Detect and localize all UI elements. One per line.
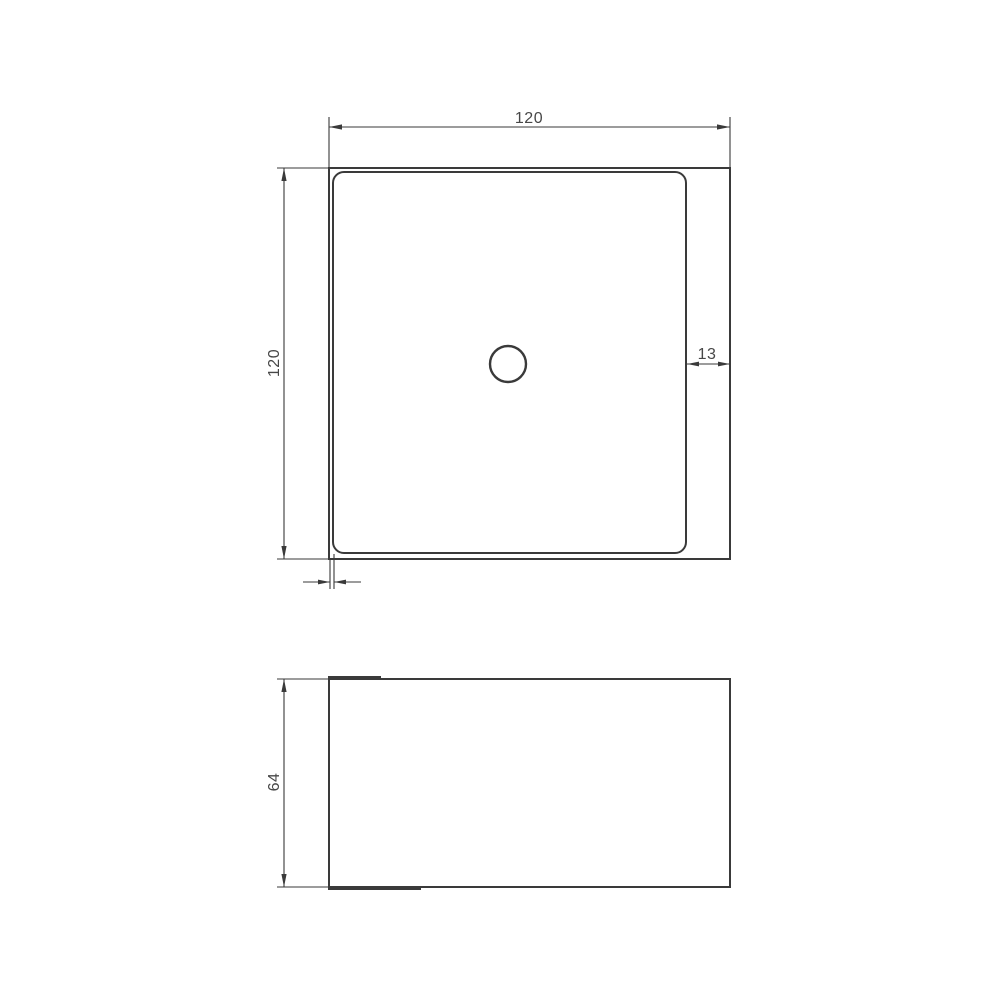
drawing-canvas: 120 120 13 64 — [0, 0, 1000, 1000]
arrow-side-height-top — [281, 679, 286, 692]
dim-label-side-height: 64 — [266, 773, 283, 792]
arrow-wall-left — [318, 580, 330, 585]
drain-hole-circle — [490, 346, 526, 382]
arrow-top-width-right — [717, 124, 730, 129]
arrow-side-height-bottom — [281, 874, 286, 887]
arrow-top-width-left — [329, 124, 342, 129]
arrow-right-offset-right — [718, 362, 730, 367]
technical-drawing: 120 120 13 64 — [0, 0, 1000, 1000]
arrow-wall-right — [334, 580, 346, 585]
outline-group — [329, 168, 730, 889]
dimension-lines-group — [277, 117, 730, 887]
dim-label-right-offset: 13 — [698, 346, 717, 363]
dim-label-top-width: 120 — [515, 110, 543, 127]
arrow-left-height-bottom — [281, 546, 286, 559]
arrow-left-height-top — [281, 168, 286, 181]
top-view-outer-rect — [329, 168, 730, 559]
side-view-rect — [329, 679, 730, 887]
arrowheads-group — [281, 124, 730, 887]
dim-label-left-height: 120 — [266, 349, 283, 377]
top-view-inner-basin-rect — [333, 172, 686, 553]
